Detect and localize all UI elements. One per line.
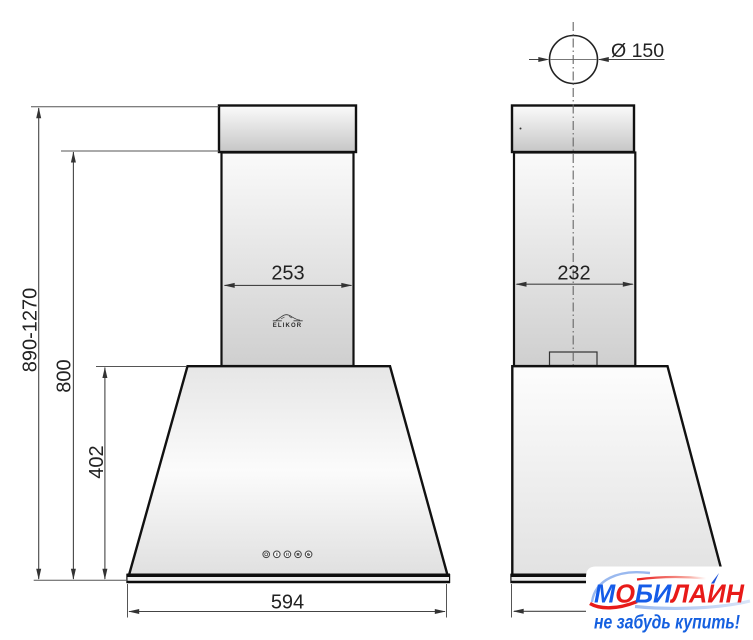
svg-text:800: 800 — [54, 359, 76, 392]
svg-text:МОБИЛАИН: МОБИЛАИН — [594, 579, 745, 609]
svg-text:232: 232 — [557, 263, 590, 285]
svg-text:253: 253 — [271, 263, 304, 285]
svg-text:Ø 150: Ø 150 — [611, 40, 664, 62]
svg-text:не забудь купить!: не забудь купить! — [594, 612, 740, 634]
svg-text:594: 594 — [271, 592, 304, 614]
svg-text:402: 402 — [86, 445, 108, 478]
svg-text:ELIKOR: ELIKOR — [273, 323, 303, 329]
svg-text:890-1270: 890-1270 — [20, 288, 42, 373]
